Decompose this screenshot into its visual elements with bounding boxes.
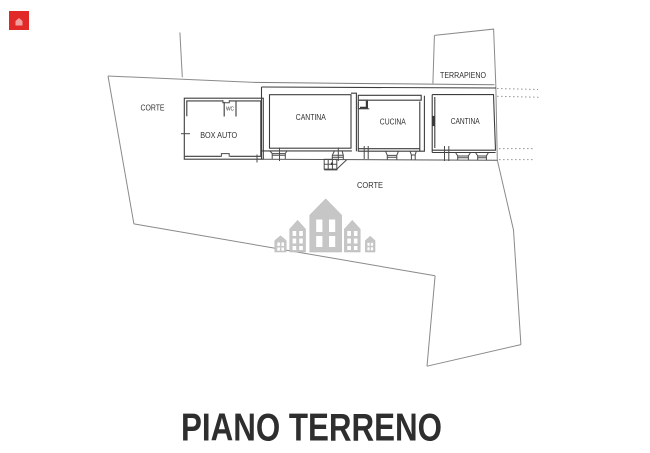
svg-text:BOX AUTO: BOX AUTO (200, 130, 237, 140)
svg-text:WC: WC (226, 107, 234, 113)
svg-text:CORTE: CORTE (357, 181, 383, 190)
svg-text:CANTINA: CANTINA (451, 117, 480, 126)
svg-text:PIANO TERRENO: PIANO TERRENO (181, 407, 442, 450)
svg-text:TERRAPIENO: TERRAPIENO (440, 71, 486, 80)
svg-text:CORTE: CORTE (141, 103, 165, 112)
svg-text:CANTINA: CANTINA (296, 113, 326, 122)
svg-text:CUCINA: CUCINA (380, 118, 406, 127)
